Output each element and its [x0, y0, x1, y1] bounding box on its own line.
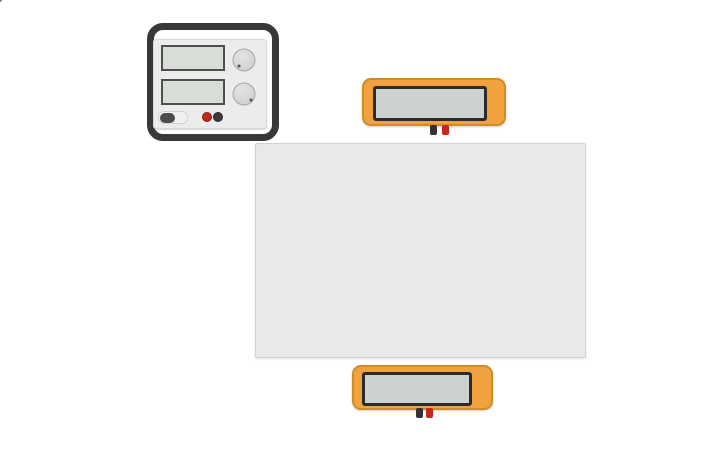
knob-marker [238, 65, 241, 68]
voltage-display [161, 45, 225, 71]
circuit-canvas [0, 0, 725, 453]
negative-terminal[interactable] [213, 112, 223, 122]
multimeter-bottom-probe-terminal[interactable] [426, 408, 433, 418]
multimeter-top-com-terminal[interactable] [430, 125, 437, 135]
current-knob[interactable] [233, 83, 256, 106]
power-toggle[interactable] [158, 111, 188, 124]
breadboard[interactable] [255, 143, 586, 358]
positive-terminal[interactable] [202, 112, 212, 122]
multimeter-top-probe-terminal[interactable] [442, 125, 449, 135]
voltage-knob[interactable] [233, 49, 256, 72]
multimeter-bottom[interactable] [352, 365, 493, 410]
current-display [161, 79, 225, 105]
diode-terminal-cathode[interactable] [0, 0, 2, 2]
multimeter-top[interactable] [362, 78, 506, 126]
knob-marker [250, 99, 253, 102]
power-toggle-thumb [160, 113, 175, 123]
multimeter-bottom-com-terminal[interactable] [416, 408, 423, 418]
